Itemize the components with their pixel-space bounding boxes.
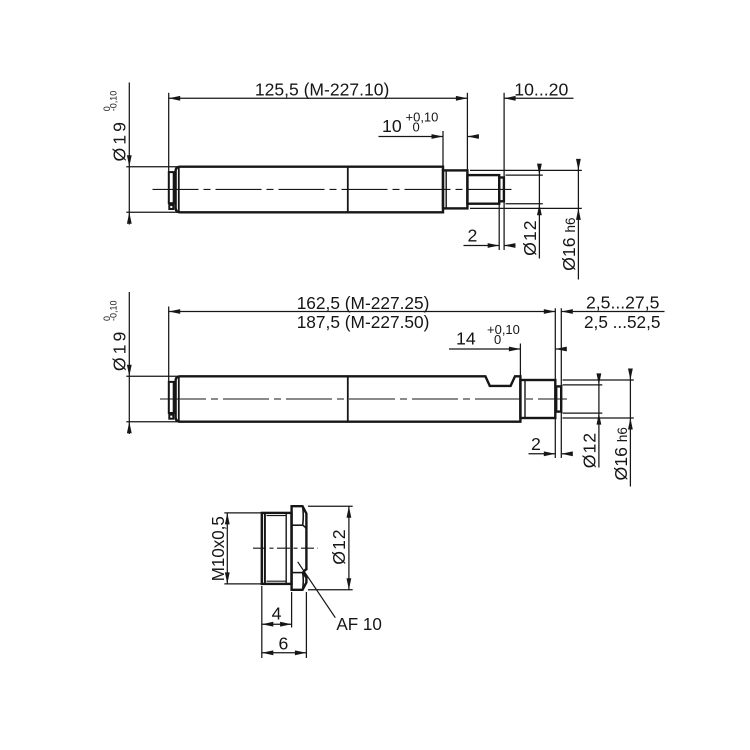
svg-text:-0,10: -0,10 — [109, 91, 119, 112]
svg-text:0: 0 — [494, 332, 501, 347]
svg-text:162,5 (M-227.25): 162,5 (M-227.25) — [297, 293, 430, 313]
svg-text:2: 2 — [531, 434, 541, 454]
svg-text:14: 14 — [456, 328, 476, 348]
svg-text:10: 10 — [382, 116, 402, 136]
svg-text:10...20: 10...20 — [514, 79, 568, 99]
svg-text:-0,10: -0,10 — [109, 300, 119, 321]
svg-text:Ø12: Ø12 — [329, 528, 349, 564]
svg-text:6: 6 — [279, 633, 289, 653]
svg-text:AF 10: AF 10 — [336, 614, 382, 634]
svg-text:125,5 (M-227.10): 125,5 (M-227.10) — [255, 80, 389, 100]
svg-text:Ø19: Ø19 — [110, 329, 130, 371]
svg-text:M10x0,5: M10x0,5 — [208, 516, 228, 581]
svg-text:Ø12: Ø12 — [520, 219, 540, 255]
svg-text:2: 2 — [468, 226, 478, 246]
svg-text:4: 4 — [272, 604, 282, 624]
svg-text:0: 0 — [413, 120, 420, 135]
svg-text:+0,10: +0,10 — [487, 322, 520, 337]
svg-text:+0,10: +0,10 — [406, 109, 439, 124]
svg-text:2,5...27,5: 2,5...27,5 — [586, 292, 660, 312]
svg-text:187,5 (M-227.50): 187,5 (M-227.50) — [297, 312, 430, 332]
svg-text:Ø19: Ø19 — [110, 119, 130, 161]
svg-text:2,5 ...52,5: 2,5 ...52,5 — [584, 312, 661, 332]
svg-text:Ø12: Ø12 — [579, 432, 599, 468]
